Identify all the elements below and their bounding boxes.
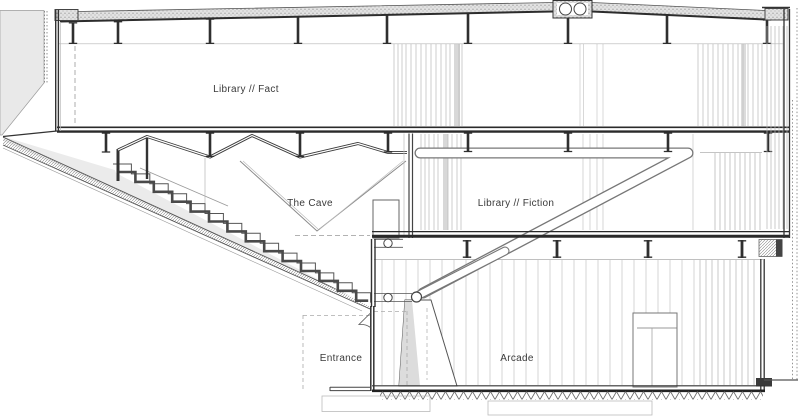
label-the-cave: The Cave [287,198,333,209]
skylight [553,1,592,19]
pin-joint-lower [384,293,392,301]
skylight-duct-left [560,3,572,15]
slab-insulation-hatch [380,392,763,401]
pin-joint-pedestal [412,292,422,302]
label-arcade: Arcade [500,353,534,364]
pin-joint-upper [384,239,392,247]
label-library-fact: Library // Fact [213,84,279,95]
skylight-duct-right [574,3,586,15]
section-drawing: Library // Fact The Cave Library // Fict… [0,0,800,417]
section-drawing-canvas: Library // Fact The Cave Library // Fict… [0,0,800,417]
label-library-fiction: Library // Fiction [478,198,555,209]
arcade-kiosk [633,313,677,387]
background [0,0,800,417]
label-entrance: Entrance [320,353,363,364]
cave-desk [373,200,399,238]
